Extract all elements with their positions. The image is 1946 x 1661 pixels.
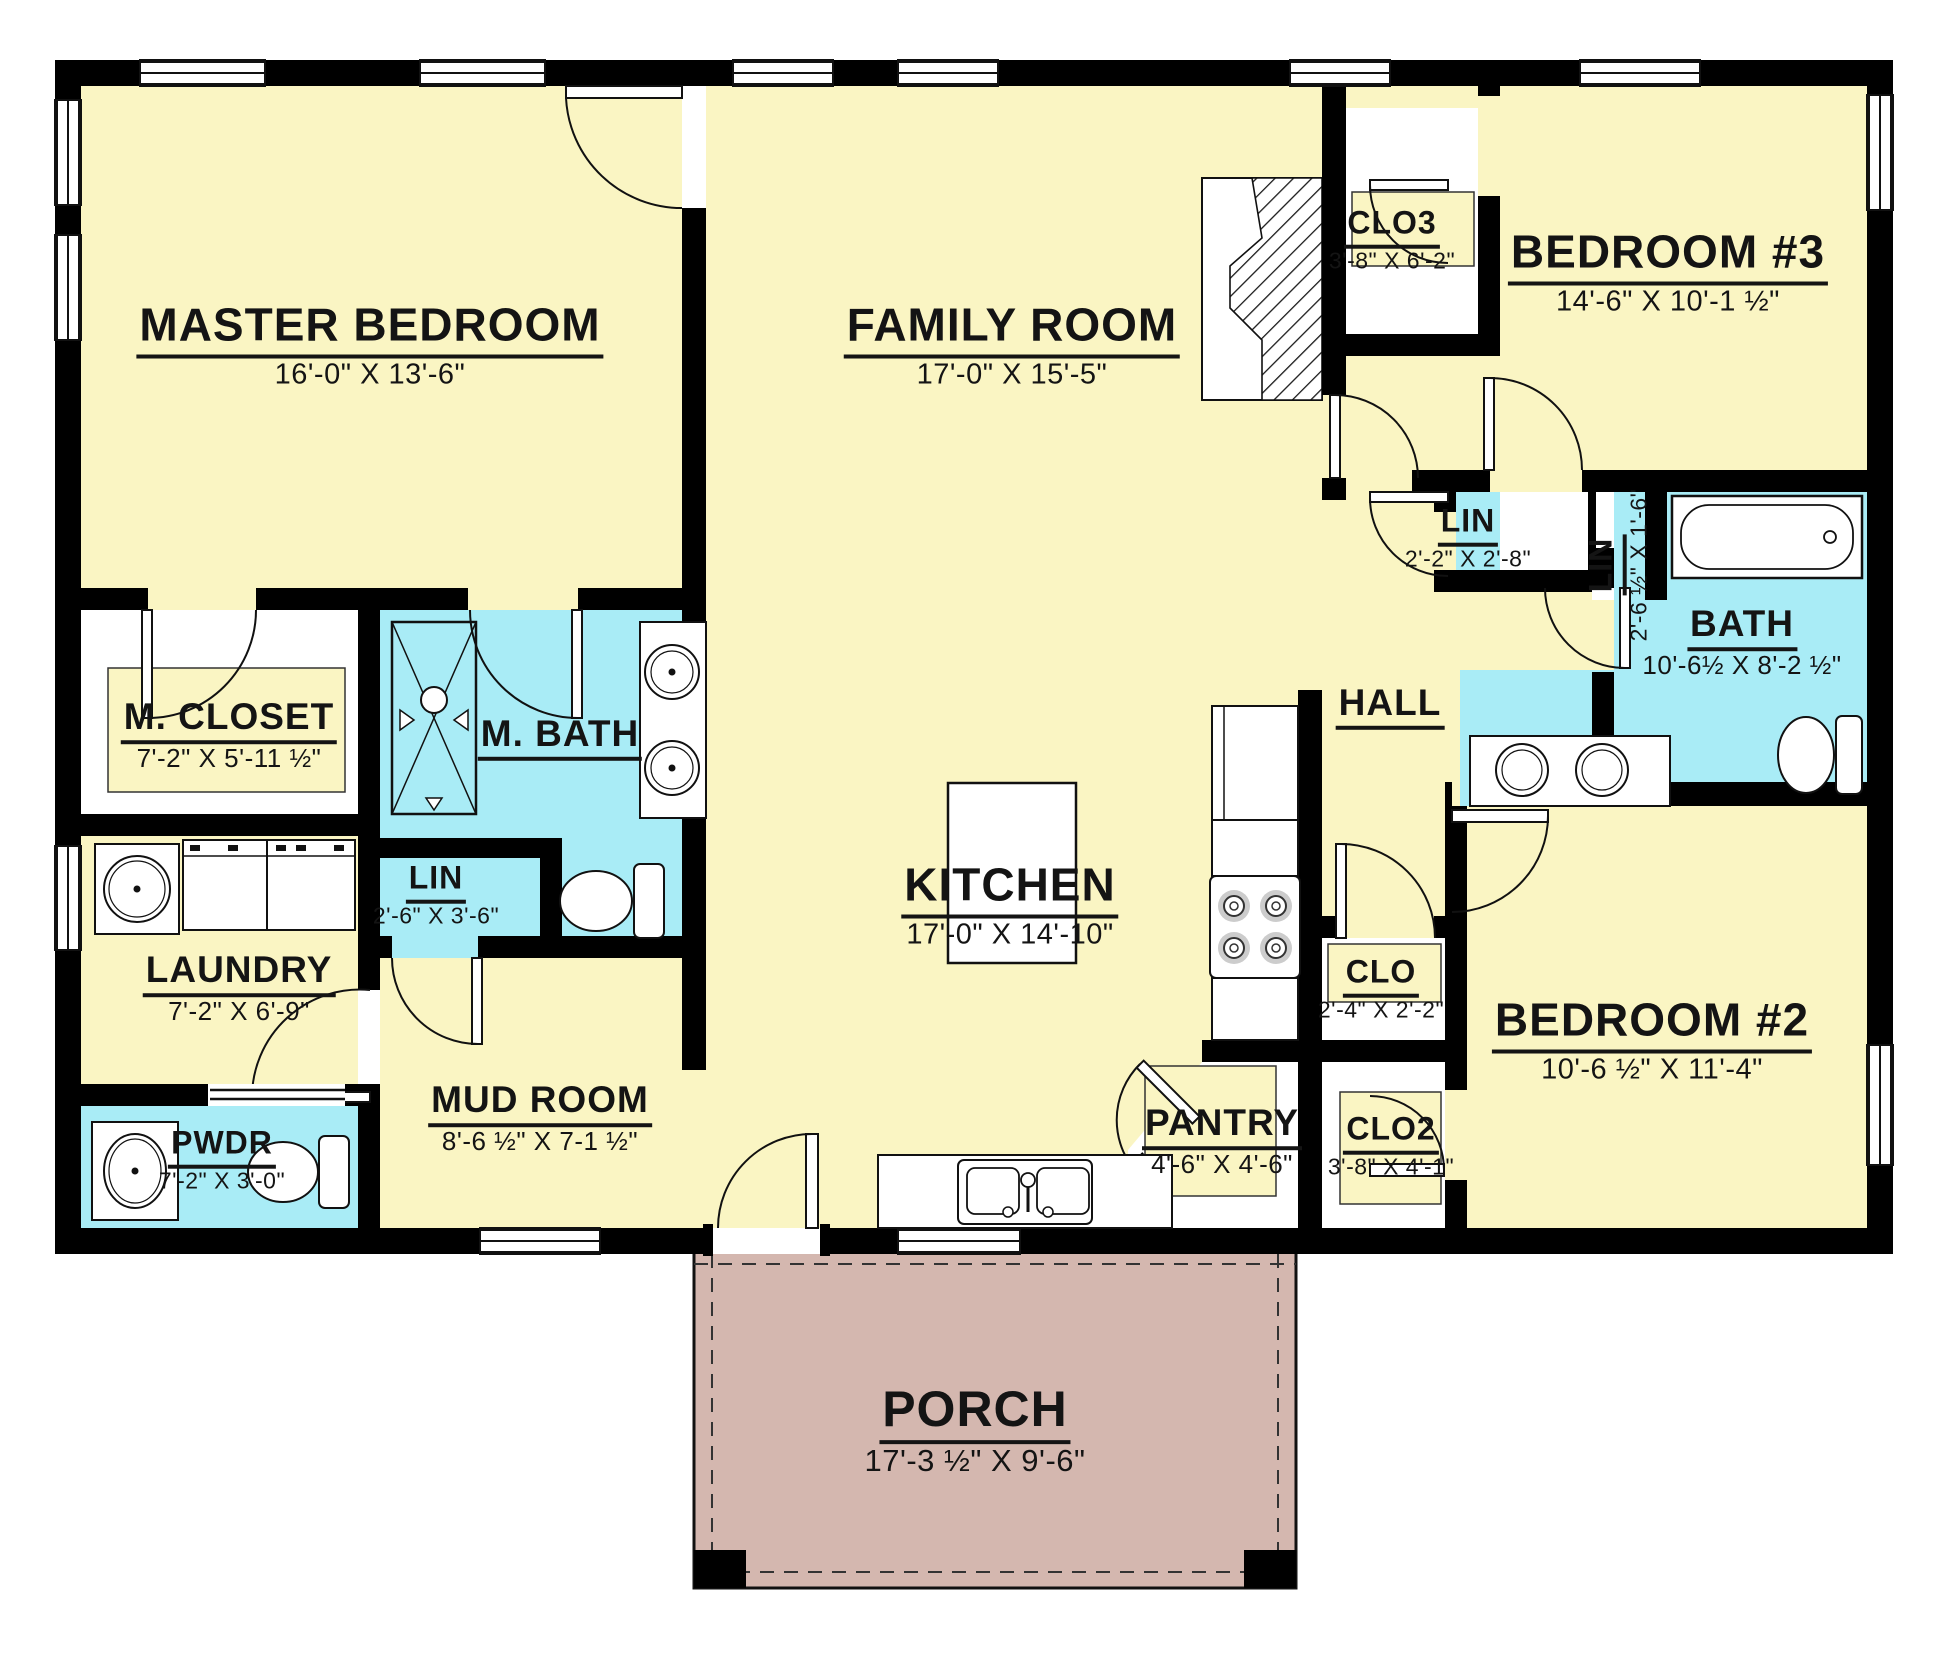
room-label-bath: BATH 10'-6½ X 8'-2 ½": [1642, 603, 1841, 681]
floor-plan-page: MASTER BEDROOM 16'-0" X 13'-6" FAMILY RO…: [0, 0, 1946, 1661]
m-bath-vanity: [640, 622, 706, 818]
room-title: LAUNDRY: [143, 949, 336, 997]
room-label-clo2: CLO2 3'-8" X 4'-1": [1328, 1112, 1454, 1181]
room-label-pantry: PANTRY 4'-6" X 4'-6": [1142, 1102, 1302, 1180]
window: [898, 1228, 1020, 1254]
room-dims: 10'-6 ½" X 11'-4": [1541, 1053, 1763, 1085]
window: [1290, 60, 1390, 86]
room-title: PORCH: [879, 1381, 1071, 1444]
room-label-kitchen: KITCHEN 17'-0" X 14'-10": [901, 860, 1118, 951]
room-title: BEDROOM #2: [1492, 995, 1812, 1054]
window: [733, 60, 833, 86]
room-dims: 17'-0" X 14'-10": [906, 918, 1113, 950]
room-dims: 2'-2" X 2'-8": [1405, 546, 1531, 572]
room-dims: 14'-6" X 10'-1 ½": [1556, 285, 1780, 317]
room-dims: 2'-6" X 3'-6": [373, 903, 499, 929]
room-label-lin-mbath: LIN 2'-6" X 3'-6": [373, 861, 499, 930]
bathtub: [1672, 496, 1862, 578]
room-label-hall: HALL: [1336, 682, 1445, 730]
stove: [1210, 876, 1300, 1040]
room-title: KITCHEN: [901, 860, 1118, 919]
fireplace: [1202, 178, 1322, 400]
room-dims: 7'-2" X 3'-0": [159, 1168, 285, 1194]
room-title: MASTER BEDROOM: [136, 300, 603, 359]
room-dims: 3'-8" X 4'-1": [1328, 1154, 1454, 1180]
room-title: M. BATH: [478, 713, 642, 761]
room-title: CLO3: [1344, 206, 1439, 249]
room-label-clo: CLO 2'-4" X 2'-2": [1318, 955, 1444, 1024]
room-dims: 3'-8" X 6'-2": [1329, 248, 1455, 274]
bath-vanity: [1470, 736, 1670, 806]
room-label-bedroom2: BEDROOM #2 10'-6 ½" X 11'-4": [1492, 995, 1812, 1086]
m-bath-toilet: [560, 864, 664, 938]
window: [140, 60, 265, 86]
dryer: [267, 840, 355, 930]
room-title: LIN: [1438, 504, 1499, 547]
window: [1867, 1045, 1893, 1165]
pocket-door-pwdr: [208, 1084, 345, 1106]
window: [480, 1228, 600, 1254]
room-title: LIN: [1584, 535, 1627, 596]
room-dims: 7'-2" X 6'-9": [168, 997, 310, 1027]
porch-post-right: [1244, 1550, 1296, 1588]
window: [55, 100, 81, 205]
room-dims: 8'-6 ½" X 7-1 ½": [442, 1127, 638, 1157]
washer: [183, 840, 267, 930]
room-dims: 2'-4" X 2'-2": [1318, 997, 1444, 1023]
room-label-family-room: FAMILY ROOM 17'-0" X 15'-5": [844, 300, 1180, 391]
window: [55, 846, 81, 950]
porch-door-opening: [713, 1228, 820, 1254]
room-title: M. CLOSET: [121, 696, 337, 744]
room-label-bedroom3: BEDROOM #3 14'-6" X 10'-1 ½": [1508, 227, 1828, 318]
room-label-m-closet: M. CLOSET 7'-2" X 5'-11 ½": [121, 696, 337, 774]
window: [55, 235, 81, 340]
bath-toilet: [1778, 716, 1862, 794]
window: [1867, 95, 1893, 210]
porch-post-left: [694, 1550, 746, 1588]
room-title: PANTRY: [1142, 1102, 1302, 1150]
room-title: FAMILY ROOM: [844, 300, 1180, 359]
room-dims: 16'-0" X 13'-6": [275, 358, 466, 390]
room-title: MUD ROOM: [428, 1079, 652, 1127]
room-title: BATH: [1687, 603, 1797, 651]
room-label-mud-room: MUD ROOM 8'-6 ½" X 7-1 ½": [428, 1079, 652, 1157]
laundry-sink: [95, 844, 179, 934]
room-dims: 17'-0" X 15'-5": [917, 358, 1108, 390]
kitchen-counter-east: [1212, 706, 1298, 876]
room-label-lin-hall: LIN 2'-2" X 2'-8": [1405, 504, 1531, 573]
room-title: CLO2: [1343, 1112, 1438, 1155]
window: [898, 60, 998, 86]
room-title: LIN: [406, 861, 467, 904]
room-label-laundry: LAUNDRY 7'-2" X 6'-9": [143, 949, 336, 1027]
room-title: PWDR: [168, 1126, 276, 1169]
room-title: CLO: [1343, 955, 1420, 998]
room-dims: 7'-2" X 5'-11 ½": [137, 744, 322, 774]
room-label-master-bedroom: MASTER BEDROOM 16'-0" X 13'-6": [136, 300, 603, 391]
room-label-m-bath: M. BATH: [478, 713, 642, 761]
kitchen-sink: [878, 1155, 1172, 1228]
room-dims: 10'-6½ X 8'-2 ½": [1642, 651, 1841, 681]
room-title: HALL: [1336, 682, 1445, 730]
room-title: BEDROOM #3: [1508, 227, 1828, 286]
room-dims: 17'-3 ½" X 9'-6": [864, 1443, 1085, 1478]
room-label-clo3: CLO3 3'-8" X 6'-2": [1329, 206, 1455, 275]
room-label-pwdr: PWDR 7'-2" X 3'-0": [159, 1126, 285, 1195]
room-dims: 4'-6" X 4'-6": [1151, 1150, 1293, 1180]
room-label-porch: PORCH 17'-3 ½" X 9'-6": [864, 1381, 1085, 1479]
window: [420, 60, 545, 86]
window: [1580, 60, 1700, 86]
